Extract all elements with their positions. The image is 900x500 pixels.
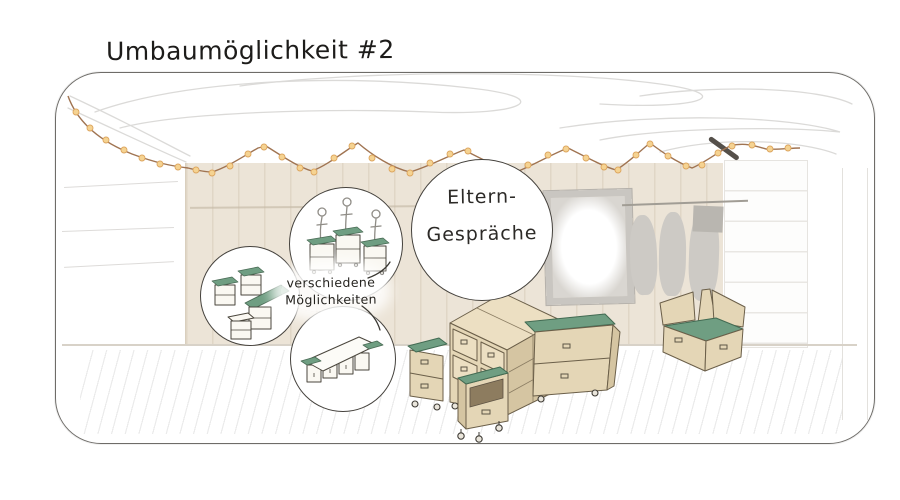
- sketch-canvas: Umbaumöglichkeit #2: [0, 0, 900, 500]
- label-connectors: [0, 0, 900, 500]
